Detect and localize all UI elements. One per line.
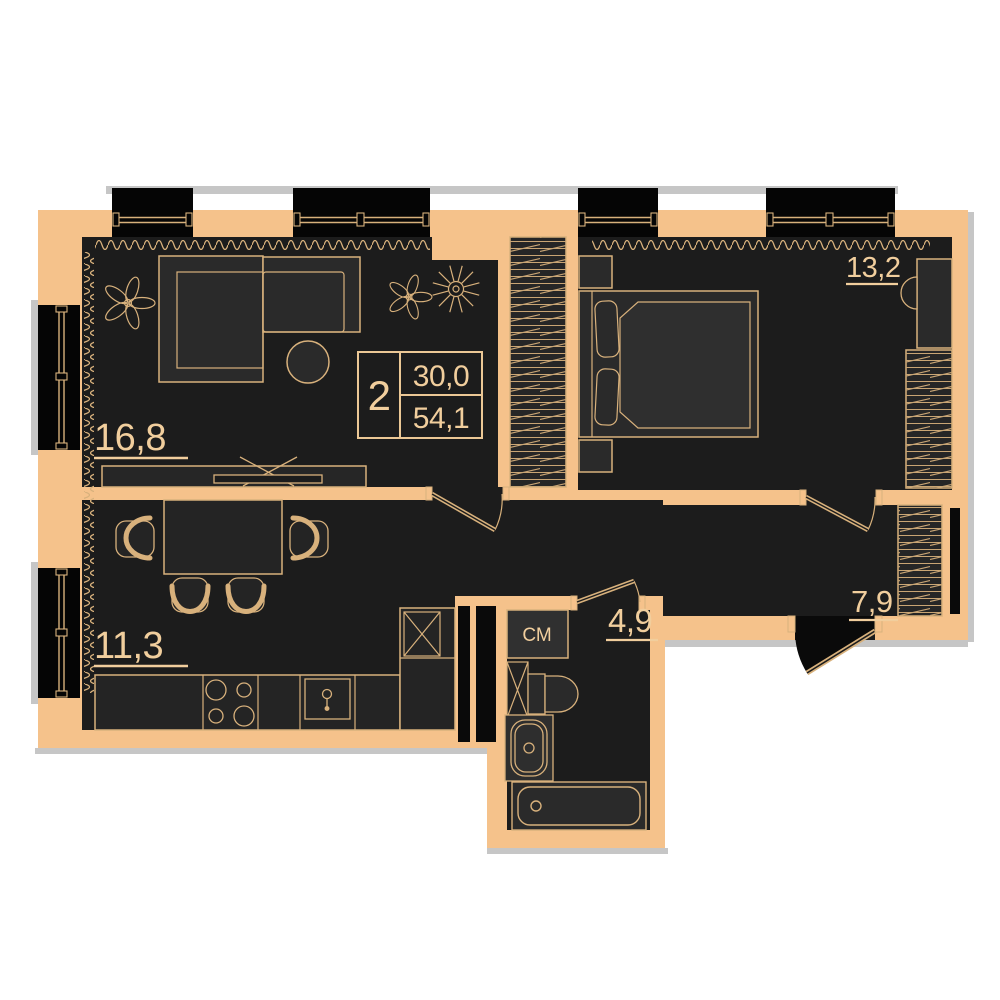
curtain-wavy-line-bedroom bbox=[592, 240, 930, 250]
window-left-2 bbox=[38, 568, 80, 698]
dining-chair-right bbox=[290, 518, 328, 558]
vent-slot-2 bbox=[476, 606, 496, 742]
window-top-1 bbox=[112, 188, 193, 237]
closet-hatch-hall-lines bbox=[898, 505, 942, 616]
dining-chair-bottom-2 bbox=[228, 578, 264, 612]
kitchen-counter bbox=[95, 675, 400, 730]
area-label-bedroom: 13,2 bbox=[846, 252, 900, 284]
shadow-left-2 bbox=[31, 562, 38, 704]
area-label-bathroom: 4,9 bbox=[608, 602, 652, 639]
shadow-bottom-bath bbox=[487, 848, 668, 854]
dining-table bbox=[164, 500, 282, 574]
window-top-3 bbox=[578, 188, 658, 237]
vent-slot-hall bbox=[950, 508, 960, 614]
washing-machine-label: СМ bbox=[522, 625, 551, 646]
coffee-table bbox=[287, 341, 329, 383]
shadow-right bbox=[968, 212, 974, 642]
vent-shaft-icon-bath bbox=[507, 662, 528, 718]
area-label-kitchen: 11,3 bbox=[94, 625, 163, 667]
dining-chair-left bbox=[116, 518, 154, 558]
floor-plan-drawing: 16,8 13,2 11,3 4,9 7,9 СМ 2 30,0 54,1 bbox=[0, 0, 1000, 1000]
unit-rooms-count: 2 bbox=[368, 372, 391, 419]
closet-hatch-center-lines bbox=[510, 237, 566, 487]
window-top-4 bbox=[766, 188, 895, 237]
shadow-bottom-kitchen bbox=[35, 748, 510, 754]
area-label-hall: 7,9 bbox=[851, 584, 893, 619]
window-top-2 bbox=[293, 188, 430, 237]
area-label-living: 16,8 bbox=[94, 417, 166, 459]
floor-plan-page: 16,8 13,2 11,3 4,9 7,9 СМ 2 30,0 54,1 bbox=[0, 0, 1000, 1000]
dining-chair-bottom-1 bbox=[172, 578, 208, 612]
vent-slot-1 bbox=[458, 606, 470, 742]
kitchen-tall-unit bbox=[400, 608, 455, 730]
shadow-left-1 bbox=[31, 300, 38, 455]
nightstand-top bbox=[579, 256, 612, 288]
tv-screen bbox=[214, 475, 322, 483]
window-left-1 bbox=[38, 305, 80, 450]
curtain-wavy-line-living bbox=[95, 240, 430, 250]
closet-hatch-bedroom-lines bbox=[906, 350, 952, 488]
blanket bbox=[620, 302, 750, 428]
bathroom-sink bbox=[505, 715, 553, 781]
unit-total-area: 54,1 bbox=[413, 402, 469, 435]
nightstand-bottom bbox=[579, 440, 612, 472]
toilet bbox=[528, 674, 578, 714]
double-bed bbox=[579, 291, 758, 437]
curtain-wavy-line-left bbox=[84, 252, 94, 693]
bathtub bbox=[512, 782, 646, 830]
unit-living-area: 30,0 bbox=[413, 360, 469, 393]
wardrobe bbox=[917, 259, 952, 348]
